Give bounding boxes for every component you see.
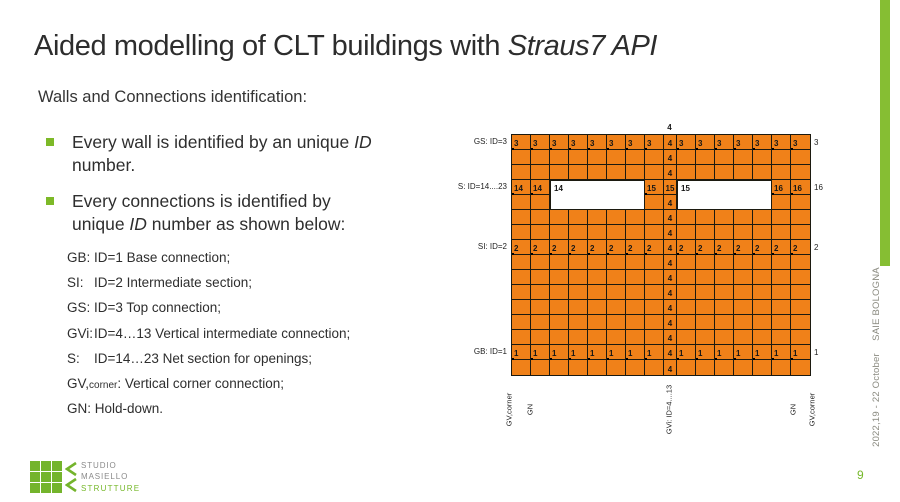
grid-cell [734, 360, 753, 375]
grid-cell [626, 225, 645, 240]
diagram-row-label: SI: ID=2 [435, 242, 507, 252]
grid-cell: 2 [715, 240, 734, 255]
connection-id-number: 1 [755, 350, 759, 358]
connection-id-number: 3 [590, 140, 594, 148]
grid-cell [569, 360, 588, 375]
logo-tiles-icon [30, 461, 62, 493]
grid-cell [626, 315, 645, 330]
page-number: 9 [857, 468, 864, 482]
window-opening: 14 [550, 180, 645, 210]
connection-desc: : Vertical corner connection; [117, 376, 284, 391]
connection-id-number: 1 [793, 350, 797, 358]
grid-cell [645, 270, 664, 285]
logo-s-icon [65, 461, 77, 494]
grid-cell [734, 150, 753, 165]
grid-cell [588, 300, 607, 315]
list-item: S:ID=14…23 Net section for openings; [67, 346, 350, 371]
connection-id-number: 2 [755, 245, 759, 253]
grid-cell: 2 [791, 240, 810, 255]
logo-tile [52, 472, 62, 482]
grid-cell [531, 360, 550, 375]
bullet-text-run: number. [72, 155, 135, 175]
grid-cell [715, 330, 734, 345]
studio-masiello-logo: STUDIO MASIELLO STRUTTURE [30, 461, 140, 494]
grid-cell: 2 [569, 240, 588, 255]
grid-cell [626, 270, 645, 285]
grid-cell: 3 [569, 135, 588, 150]
grid-cell [715, 150, 734, 165]
connection-id-number: 2 [571, 245, 575, 253]
grid-cell: 4 [664, 330, 677, 345]
grid-cell [626, 330, 645, 345]
presentation-slide: Aided modelling of CLT buildings with St… [0, 0, 900, 502]
grid-cell [645, 300, 664, 315]
grid-cell [696, 225, 715, 240]
connection-id-number: 1 [698, 350, 702, 358]
connection-id-number: 2 [793, 245, 797, 253]
logo-line-studio: STUDIO [81, 461, 140, 472]
connection-id-number: 1 [717, 350, 721, 358]
grid-cell [677, 210, 696, 225]
grid-cell: 2 [531, 240, 550, 255]
grid-cell [753, 285, 772, 300]
grid-cell [607, 255, 626, 270]
connection-id-number: 3 [755, 140, 759, 148]
grid-cell [588, 165, 607, 180]
grid-cell [791, 255, 810, 270]
grid-cell [791, 270, 810, 285]
grid-cell [791, 225, 810, 240]
grid-cell [626, 360, 645, 375]
grid-cell [677, 270, 696, 285]
grid-cell [569, 285, 588, 300]
grid-cell: 1 [531, 345, 550, 360]
grid-cell [512, 360, 531, 375]
grid-cell [715, 315, 734, 330]
grid-cell: 1 [550, 345, 569, 360]
grid-cell [734, 300, 753, 315]
grid-cell: 4 [664, 135, 677, 150]
connection-id-number: 4 [664, 290, 676, 298]
connection-key: GB: [67, 245, 94, 270]
connection-id-number: 2 [717, 245, 721, 253]
grid-cell [569, 150, 588, 165]
grid-cell [550, 330, 569, 345]
connection-id-number: 3 [571, 140, 575, 148]
connection-desc: ID=2 Intermediate section; [94, 275, 252, 290]
grid-cell: 4 [664, 240, 677, 255]
grid-cell: 2 [645, 240, 664, 255]
connection-id-number: 4 [664, 366, 676, 374]
connection-id-number: 4 [664, 275, 676, 283]
grid-cell: 15 [645, 180, 664, 195]
grid-cell [696, 255, 715, 270]
connection-key: GVi: [67, 321, 94, 346]
connection-id-number: 2 [533, 245, 537, 253]
grid-cell: 3 [645, 135, 664, 150]
grid-cell [531, 300, 550, 315]
grid-cell: 2 [677, 240, 696, 255]
grid-cell [569, 330, 588, 345]
grid-cell [753, 360, 772, 375]
grid-cell: 2 [753, 240, 772, 255]
grid-cell [791, 165, 810, 180]
grid-cell [677, 150, 696, 165]
connection-id-number: 3 [698, 140, 702, 148]
connection-id-number: 3 [793, 140, 797, 148]
grid-cell [550, 210, 569, 225]
grid-cell: 1 [607, 345, 626, 360]
grid-cell: 4 [664, 315, 677, 330]
connection-id-number: 16 [774, 185, 783, 193]
grid-cell [607, 225, 626, 240]
connection-key: S: [67, 346, 94, 371]
grid-cell [569, 225, 588, 240]
list-item: GN: Hold-down. [67, 396, 350, 421]
grid-cell [734, 330, 753, 345]
grid-cell [531, 210, 550, 225]
diagram-column-label: GVi: ID=4....13 [663, 375, 676, 445]
grid-cell: 2 [607, 240, 626, 255]
grid-cell [772, 285, 791, 300]
connection-desc: ID=3 Top connection; [94, 300, 221, 315]
connection-id-number: 4 [664, 155, 676, 163]
grid-cell [715, 285, 734, 300]
connection-id-number: 14 [533, 185, 542, 193]
grid-cell [791, 360, 810, 375]
connection-id-number: 4 [664, 350, 676, 358]
logo-tile [30, 472, 40, 482]
grid-cell: 4 [664, 300, 677, 315]
wall-elevation-diagram: 3333333343333333441414151516164442222222… [511, 134, 811, 376]
grid-cell: 1 [677, 345, 696, 360]
grid-cell [588, 150, 607, 165]
connection-id-number: 4 [664, 170, 676, 178]
grid-cell: 4 [664, 270, 677, 285]
grid-cell: 15 [664, 180, 677, 195]
connection-desc: ID=14…23 Net section for openings; [94, 351, 312, 366]
grid-cell [715, 225, 734, 240]
grid-cell [677, 300, 696, 315]
window-opening: 15 [677, 180, 772, 210]
grid-cell [753, 255, 772, 270]
logo-text: STUDIO MASIELLO STRUTTURE [81, 461, 140, 494]
grid-cell [677, 255, 696, 270]
grid-cell [626, 255, 645, 270]
grid-cell [734, 165, 753, 180]
connection-id-number: 1 [590, 350, 594, 358]
grid-cell [588, 270, 607, 285]
connection-id-number: 2 [736, 245, 740, 253]
grid-cell [677, 315, 696, 330]
connection-id-number: 15 [647, 185, 656, 193]
connection-id-number: 14 [514, 185, 523, 193]
grid-cell [677, 225, 696, 240]
grid-cell [715, 210, 734, 225]
grid-cell [753, 150, 772, 165]
grid-cell [696, 330, 715, 345]
grid-cell [569, 270, 588, 285]
grid-cell [588, 210, 607, 225]
grid-cell [550, 270, 569, 285]
grid-cell [607, 210, 626, 225]
grid-cell [715, 300, 734, 315]
connection-id-number: 1 [609, 350, 613, 358]
list-item: GV,corner: Vertical corner connection; [67, 371, 350, 396]
grid-cell [734, 210, 753, 225]
grid-cell [772, 210, 791, 225]
connection-id-number: 14 [554, 185, 563, 193]
connection-key: SI: [67, 270, 94, 295]
grid-cell: 4 [664, 195, 677, 210]
grid-cell [791, 300, 810, 315]
grid-cell: 4 [664, 255, 677, 270]
title-text: Aided modelling of CLT buildings with [34, 30, 508, 62]
connection-id-number: 3 [514, 140, 518, 148]
grid-cell [626, 300, 645, 315]
grid-cell: 1 [715, 345, 734, 360]
bullet-square-icon [46, 197, 54, 205]
bullet-item: Every wall is identified by an unique ID… [46, 131, 446, 177]
connection-id-number: 4 [664, 260, 676, 268]
grid-cell [588, 360, 607, 375]
grid-cell: 4 [664, 285, 677, 300]
grid-cell [645, 225, 664, 240]
grid-cell [645, 210, 664, 225]
grid-cell [772, 360, 791, 375]
bullet-list: Every wall is identified by an unique ID… [46, 131, 446, 249]
grid-cell [512, 165, 531, 180]
diagram-column-label: GV,corner [503, 375, 516, 445]
grid-cell: 3 [588, 135, 607, 150]
grid-cell [677, 165, 696, 180]
grid-cell [753, 165, 772, 180]
grid-cell [569, 255, 588, 270]
grid-cell: 4 [664, 345, 677, 360]
grid-cell [645, 165, 664, 180]
connection-id-number: 3 [552, 140, 556, 148]
grid-cell [569, 210, 588, 225]
connection-id-number: 1 [774, 350, 778, 358]
grid-cell [588, 315, 607, 330]
grid-cell [607, 315, 626, 330]
grid-cell: 4 [664, 165, 677, 180]
grid-cell [512, 225, 531, 240]
grid-cell [696, 150, 715, 165]
connection-id-number: 4 [664, 140, 676, 148]
grid-cell [753, 300, 772, 315]
grid-cell [645, 315, 664, 330]
grid-cell [550, 360, 569, 375]
grid-cell [791, 150, 810, 165]
grid-cell: 1 [791, 345, 810, 360]
logo-tile [41, 461, 51, 471]
grid-cell [512, 210, 531, 225]
bullet-text-italic: ID [354, 132, 372, 152]
grid-cell: 3 [550, 135, 569, 150]
connection-id-number: 3 [647, 140, 651, 148]
grid-cell [772, 315, 791, 330]
grid-cell [645, 150, 664, 165]
grid-cell: 3 [512, 135, 531, 150]
grid-cell [607, 150, 626, 165]
grid-cell [607, 285, 626, 300]
connection-desc: GN: Hold-down. [67, 401, 163, 416]
diagram-edge-number: 16 [814, 183, 834, 193]
grid-cell [588, 255, 607, 270]
grid-cell [791, 315, 810, 330]
connection-id-number: 1 [679, 350, 683, 358]
grid-cell [753, 330, 772, 345]
grid-cell [753, 225, 772, 240]
logo-tile [52, 461, 62, 471]
logo-tile [41, 483, 51, 493]
grid-cell [626, 285, 645, 300]
diagram-row-label: GS: ID=3 [435, 137, 507, 147]
diagram-column-label: GV,corner [806, 375, 819, 445]
connection-id-number: 4 [664, 230, 676, 238]
connection-id-number: 4 [664, 305, 676, 313]
bullet-item: Every connections is identified byunique… [46, 190, 446, 236]
connection-desc: ID=4…13 Vertical intermediate connection… [94, 326, 350, 341]
grid-cell: 1 [772, 345, 791, 360]
diagram-row-label: GB: ID=1 [435, 347, 507, 357]
grid-cell [791, 210, 810, 225]
list-item: GB:ID=1 Base connection; [67, 245, 350, 270]
grid-cell [696, 270, 715, 285]
connection-id-number: 16 [793, 185, 802, 193]
connection-id-number: 3 [628, 140, 632, 148]
list-item: SI:ID=2 Intermediate section; [67, 270, 350, 295]
connection-id-number: 1 [736, 350, 740, 358]
grid-cell: 4 [664, 150, 677, 165]
connection-id-number: 4 [664, 335, 676, 343]
connection-id-number: 1 [514, 350, 518, 358]
connection-key: GV, [67, 376, 89, 391]
connection-id-number: 15 [664, 185, 676, 193]
list-item: GVi:ID=4…13 Vertical intermediate connec… [67, 321, 350, 346]
connection-id-number: 2 [609, 245, 613, 253]
grid-cell [715, 165, 734, 180]
grid-cell: 2 [772, 240, 791, 255]
logo-tile [30, 483, 40, 493]
grid-cell [677, 285, 696, 300]
section-heading: Walls and Connections identification: [38, 88, 307, 107]
grid-cell [645, 285, 664, 300]
grid-cell [512, 300, 531, 315]
grid-cell [607, 165, 626, 180]
grid-cell [734, 285, 753, 300]
event-date-vertical-text: 2022,19 - 22 October [871, 335, 885, 465]
grid-cell [512, 270, 531, 285]
grid-cell [696, 165, 715, 180]
grid-cell [645, 195, 664, 210]
grid-cell: 2 [696, 240, 715, 255]
connection-id-number: 15 [681, 185, 690, 193]
grid-cell [531, 165, 550, 180]
grid-cell [512, 150, 531, 165]
grid-cell [512, 255, 531, 270]
connection-id-number: 1 [552, 350, 556, 358]
grid-cell: 3 [734, 135, 753, 150]
grid-cell: 16 [772, 180, 791, 195]
connection-id-number: 2 [698, 245, 702, 253]
connection-id-number: 3 [717, 140, 721, 148]
grid-cell [531, 285, 550, 300]
grid-cell [550, 150, 569, 165]
grid-cell [645, 360, 664, 375]
grid-cell [677, 360, 696, 375]
grid-cell [588, 225, 607, 240]
grid-cell [531, 330, 550, 345]
grid-cell: 4 [664, 360, 677, 375]
grid-cell [569, 315, 588, 330]
grid-cell [734, 315, 753, 330]
bullet-text-italic: ID [129, 214, 147, 234]
grid-cell [734, 255, 753, 270]
connection-id-number: 3 [736, 140, 740, 148]
top-connection-label: 4 [663, 123, 676, 132]
bullet-square-icon [46, 138, 54, 146]
grid-cell: 1 [512, 345, 531, 360]
connection-id-number: 3 [609, 140, 613, 148]
diagram-column-label: GN [524, 375, 537, 445]
grid-cell [550, 225, 569, 240]
grid-cell: 4 [664, 210, 677, 225]
grid-cell [772, 300, 791, 315]
grid-cell [772, 150, 791, 165]
grid-cell: 3 [772, 135, 791, 150]
grid-cell [753, 210, 772, 225]
grid-cell: 3 [677, 135, 696, 150]
bullet-text-run: unique [72, 214, 129, 234]
grid-cell [677, 330, 696, 345]
grid-cell: 2 [512, 240, 531, 255]
connection-key-subscript: corner [89, 380, 117, 391]
logo-line-masiello: MASIELLO [81, 472, 140, 483]
list-item: GS:ID=3 Top connection; [67, 295, 350, 320]
grid-cell [791, 330, 810, 345]
grid-cell [531, 315, 550, 330]
diagram-edge-number: 3 [814, 138, 834, 148]
grid-cell [588, 285, 607, 300]
grid-cell [715, 360, 734, 375]
grid-cell: 3 [607, 135, 626, 150]
bullet-text: Every connections is identified byunique… [72, 190, 345, 236]
grid-cell: 1 [734, 345, 753, 360]
grid-cell [588, 330, 607, 345]
grid-cell [715, 255, 734, 270]
grid-cell [645, 255, 664, 270]
grid-cell: 1 [645, 345, 664, 360]
grid-cell [772, 255, 791, 270]
grid-cell: 3 [531, 135, 550, 150]
grid-cell: 2 [734, 240, 753, 255]
connection-id-number: 4 [664, 215, 676, 223]
diagram-edge-number: 1 [814, 348, 834, 358]
grid-cell [550, 255, 569, 270]
connection-id-number: 4 [664, 320, 676, 328]
grid-cell [531, 225, 550, 240]
grid-cell [626, 150, 645, 165]
grid-cell [734, 270, 753, 285]
grid-cell: 2 [626, 240, 645, 255]
grid-cell [531, 255, 550, 270]
grid-cell [512, 315, 531, 330]
connection-id-number: 2 [628, 245, 632, 253]
grid-cell: 3 [715, 135, 734, 150]
grid-cell [607, 330, 626, 345]
